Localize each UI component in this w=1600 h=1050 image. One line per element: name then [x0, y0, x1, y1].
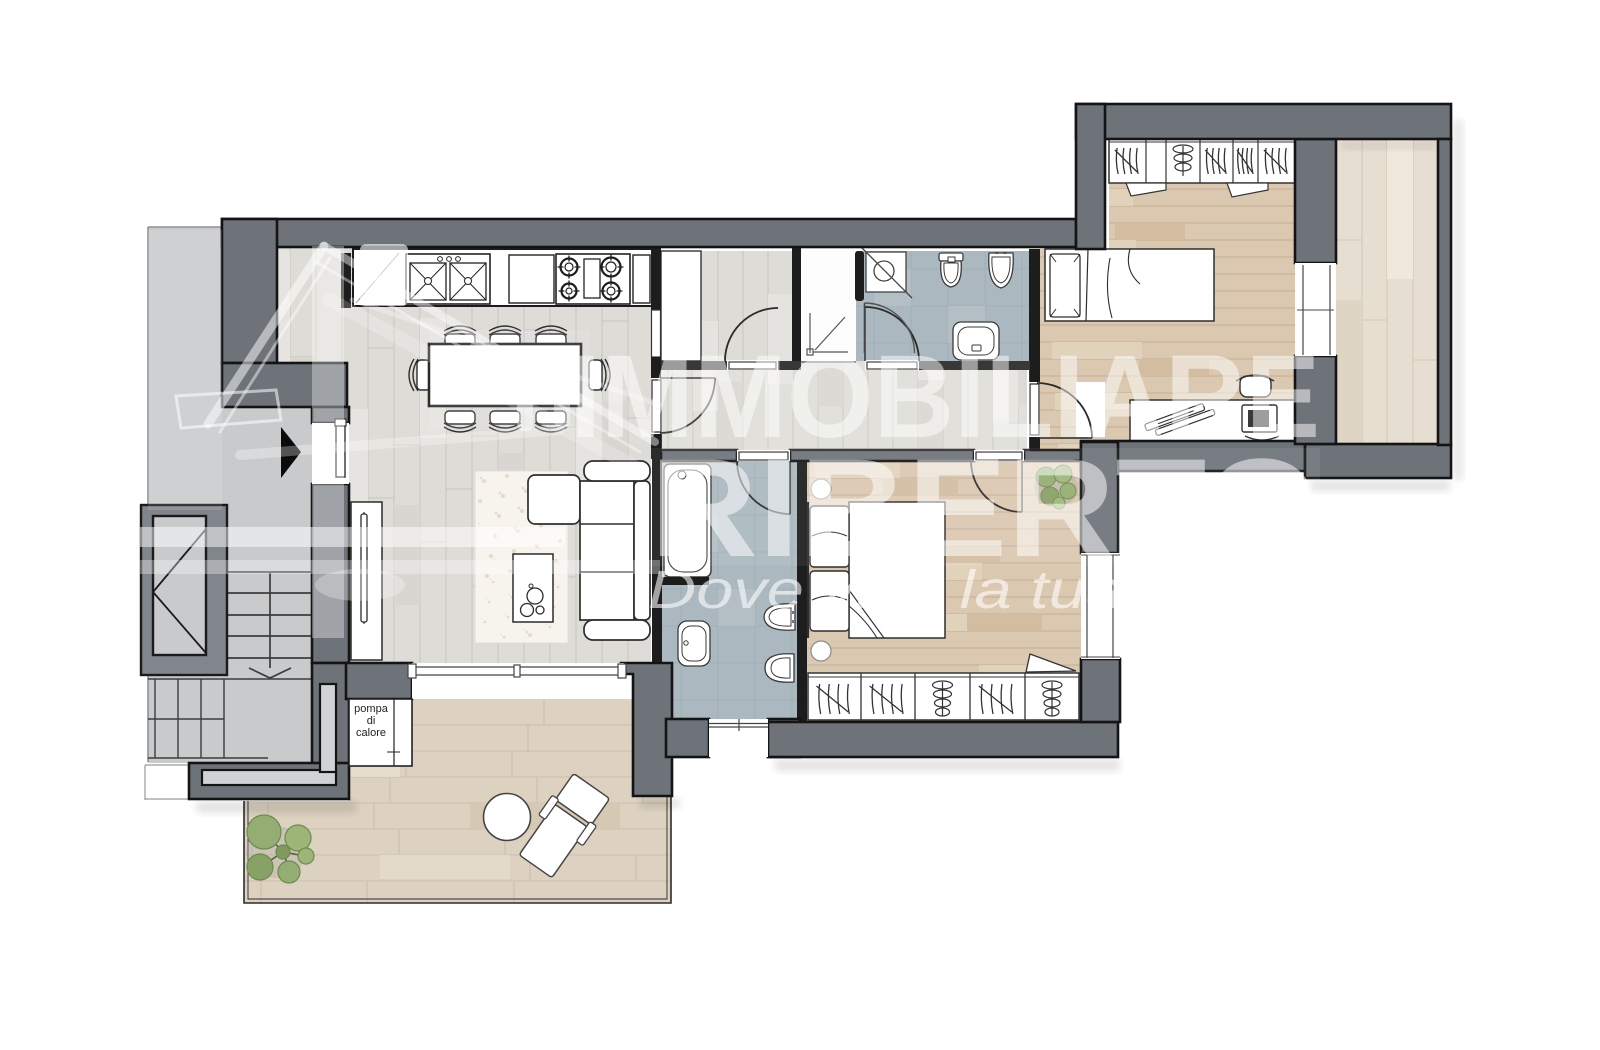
svg-text:di: di	[367, 715, 376, 727]
svg-text:pompa: pompa	[354, 703, 389, 715]
svg-text:calore: calore	[356, 727, 386, 739]
svg-text:Dove vive la tua: Dove vive la tua	[648, 560, 1123, 620]
